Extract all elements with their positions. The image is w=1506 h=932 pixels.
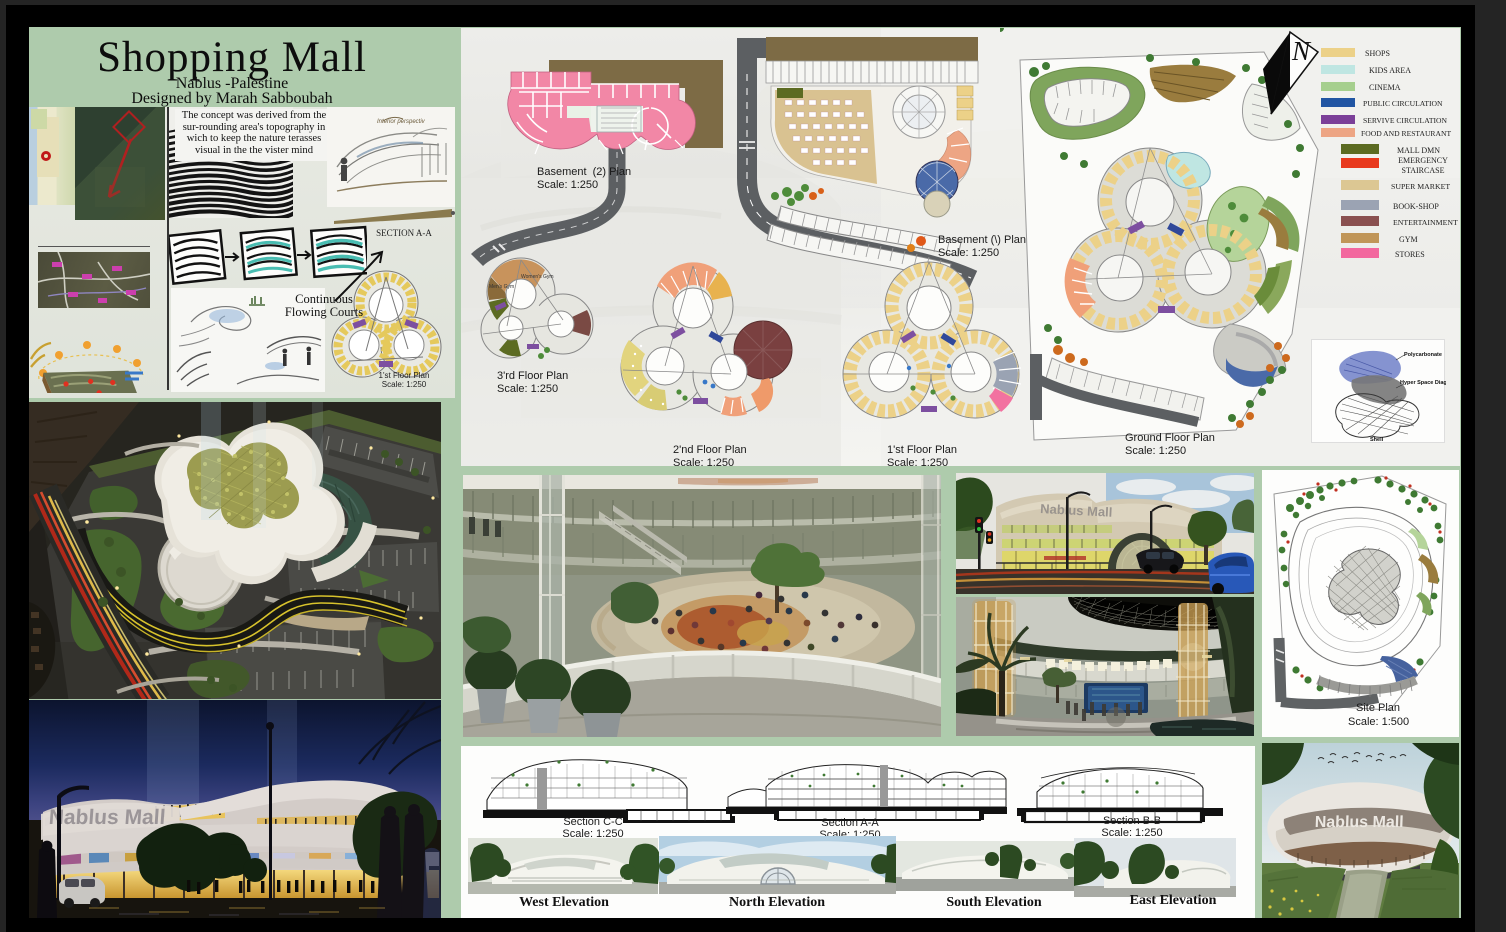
svg-text:Scale: 1:500: Scale: 1:500 — [1348, 716, 1409, 728]
svg-text:Section A-A: Section A-A — [821, 817, 879, 829]
svg-text:Women's Gym: Women's Gym — [521, 274, 554, 280]
svg-text:Polycarbonate: Polycarbonate — [1404, 352, 1442, 358]
svg-text:Scale: 1:250: Scale: 1:250 — [1101, 827, 1162, 839]
svg-text:East Elevation: East Elevation — [1130, 893, 1217, 908]
svg-text:Nablus Mall: Nablus Mall — [1314, 814, 1403, 831]
svg-text:Shell: Shell — [1370, 437, 1384, 443]
svg-text:Interior perspectiv: Interior perspectiv — [377, 119, 426, 125]
svg-text:N: N — [1291, 36, 1312, 66]
svg-text:Site Plan: Site Plan — [1356, 702, 1400, 714]
svg-text:West Elevation: West Elevation — [519, 895, 609, 910]
svg-text:Section C-C: Section C-C — [563, 816, 622, 828]
svg-text:North Elevation: North Elevation — [729, 895, 825, 910]
svg-text:South Elevation: South Elevation — [946, 895, 1042, 910]
svg-text:Men's Gym: Men's Gym — [489, 284, 514, 290]
svg-text:Section B-B: Section B-B — [1103, 815, 1161, 827]
svg-text:Nablus Mall: Nablus Mall — [48, 806, 166, 829]
svg-text:Hyper Space Diagrid: Hyper Space Diagrid — [1400, 380, 1446, 386]
